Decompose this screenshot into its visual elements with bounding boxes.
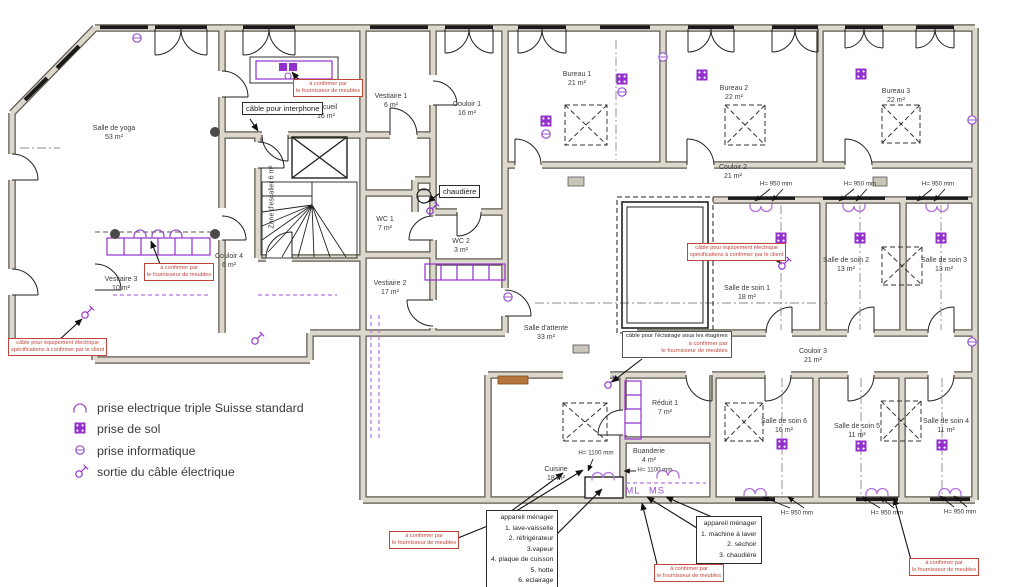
room-label-soin6: Salle de soin 616 m² [761, 417, 807, 435]
dim-h950: H= 950 mm [844, 181, 876, 188]
room-label-soin1: Salle de soin 118 m² [724, 284, 770, 302]
room-label-bureau3: Bureau 322 m² [882, 87, 910, 105]
callout-confirm-right: à confirmer parle fournisseur de meubles [909, 558, 979, 576]
room-label-soin4: Salle de soin 411 m² [923, 417, 969, 435]
room-label-vestiaire3: Vestiaire 310 m² [105, 275, 138, 293]
room-label-soin3: Salle de soin 313 m² [921, 256, 967, 274]
callout-confirm-vestiaire3: à confirmer parle fournisseur de meubles [144, 263, 214, 281]
callout-cable-equipement-left: câble pour équipement électriquespécific… [8, 338, 107, 356]
room-label-soin5: Salle de soin 511 m² [834, 422, 880, 440]
bench [498, 376, 528, 384]
callout-confirm-bottom: à confirmer parle fournisseur de meubles [654, 564, 724, 582]
callout-cable-equipement-center: câble pour équipement électriquespécific… [687, 243, 786, 261]
dim-h1100: H= 1100 mm [578, 450, 613, 457]
structural-columns [110, 127, 220, 239]
legend-item-triple-socket: prise electrique triple Suisse standard [97, 401, 304, 415]
room-label-couloir1: Couloir 116 m² [453, 100, 481, 118]
legend-item-cable-exit: sortie du câble électrique [97, 465, 235, 479]
room-label-escalier: Zone d'escalier 6 m² [267, 165, 276, 228]
room-label-bureau1: Bureau 121 m² [563, 70, 591, 88]
network-socket-icon [76, 446, 84, 454]
callout-cable-eclairage: câble pour l'éclairage sous les étagères… [622, 331, 732, 358]
radiator [568, 177, 584, 186]
room-label-soin2: Salle de soin 213 m² [823, 256, 869, 274]
room-label-couloir4: Couloir 46 m² [215, 252, 243, 270]
marker-ms: MS [649, 486, 665, 497]
triple-socket-arc-icon [74, 404, 86, 413]
room-label-yoga: Salle de yoga53 m² [93, 124, 135, 142]
room-label-reduit1: Réduit 17 m² [652, 399, 678, 417]
elevator-shaft [292, 137, 347, 178]
callout-appareil-cuisine: appareil ménager 1. lave-vaisselle 2. ré… [486, 510, 558, 587]
dim-h950: H= 950 mm [760, 181, 792, 188]
dim-h950: H= 950 mm [944, 509, 976, 516]
cable-exit-icon [76, 465, 88, 477]
legend-symbols [74, 404, 88, 477]
radiator [573, 345, 589, 353]
room-label-couloir2: Couloir 221 m² [719, 163, 747, 181]
dim-h950: H= 950 mm [871, 510, 903, 517]
room-label-attente: Salle d'attente33 m² [524, 324, 568, 342]
marker-ml: ML [625, 486, 640, 497]
room-label-vestiaire2: Vestiaire 217 m² [374, 279, 407, 297]
callout-interphone: câble pour interphone [242, 102, 323, 115]
callout-chaudiere: chaudière [439, 185, 480, 198]
floor-plan-stage: Salle de yoga53 m² Vestiaire 16 m² Accue… [0, 0, 1015, 587]
floor-plan-drawing [0, 0, 1015, 587]
room-label-vestiaire1: Vestiaire 16 m² [375, 92, 408, 110]
room-label-cuisine: Cuisine18 m² [544, 465, 567, 483]
callout-appareil-buanderie: appareil ménager 1. machine à laver 2. s… [696, 516, 762, 564]
structure-box [617, 197, 713, 333]
dim-h950: H= 950 mm [922, 181, 954, 188]
callout-confirm-cuisine: à confirmer parle fournisseur de meubles [389, 531, 459, 549]
legend-item-floor-socket: prise de sol [97, 422, 160, 436]
room-label-bureau2: Bureau 222 m² [720, 84, 748, 102]
room-label-couloir3: Couloir 321 m² [799, 347, 827, 365]
room-label-wc1: WC 17 m² [376, 215, 394, 233]
room-label-buanderie: Buanderie4 m² [633, 447, 665, 465]
legend-item-network-socket: prise informatique [97, 444, 195, 458]
dim-h1100: H= 1100 mm [637, 467, 672, 474]
room-label-wc2: WC 23 m² [452, 237, 470, 255]
floor-socket-icon [75, 423, 86, 434]
dim-h950: H= 950 mm [781, 510, 813, 517]
callout-confirm-desk: à confirmer parle fournisseur de meubles [293, 79, 363, 97]
